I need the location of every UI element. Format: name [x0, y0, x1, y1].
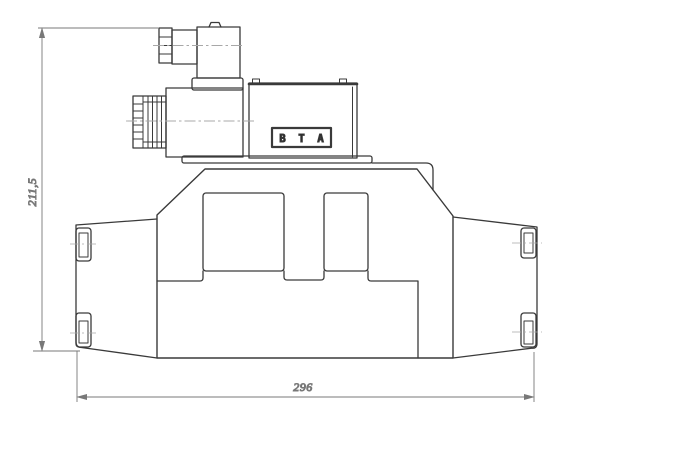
valve-drawing-canvas: B T A 211,5 296 [0, 0, 683, 467]
technical-drawing-page: B T A 211,5 296 [0, 0, 683, 467]
port-label-b: B [279, 133, 285, 145]
height-dimension-label: 211,5 [25, 178, 39, 207]
port-label-a: A [317, 133, 324, 145]
width-dimension-label: 296 [293, 380, 313, 394]
port-label-t: T [298, 133, 304, 145]
